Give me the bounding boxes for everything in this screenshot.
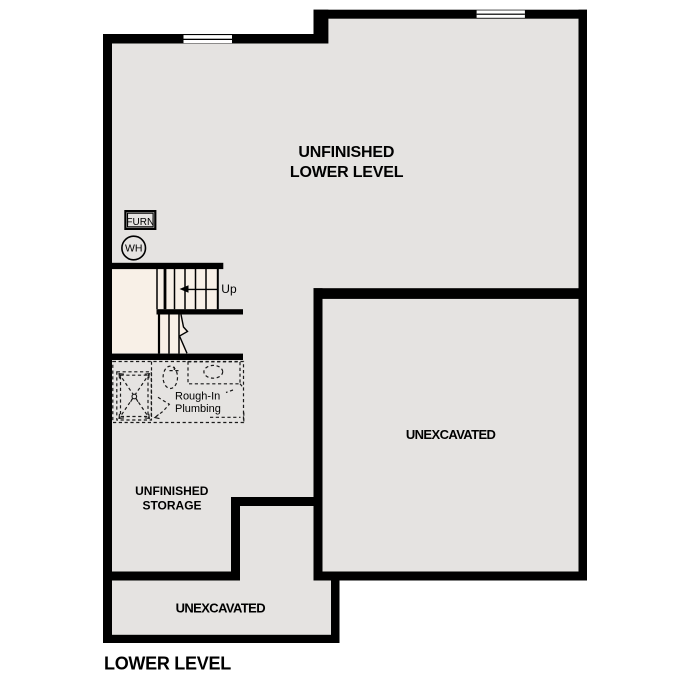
svg-text:LOWER LEVEL: LOWER LEVEL [290, 164, 404, 181]
svg-text:UNFINISHED: UNFINISHED [135, 484, 209, 498]
svg-text:LOWER LEVEL: LOWER LEVEL [104, 654, 231, 674]
svg-text:UNEXCAVATED: UNEXCAVATED [176, 601, 266, 616]
svg-text:Rough-In: Rough-In [175, 391, 220, 403]
svg-text:STORAGE: STORAGE [142, 498, 201, 512]
svg-text:Up: Up [221, 282, 237, 296]
svg-text:FURN: FURN [126, 217, 154, 228]
svg-text:UNFINISHED: UNFINISHED [298, 144, 394, 161]
svg-text:UNEXCAVATED: UNEXCAVATED [406, 427, 496, 442]
svg-text:Plumbing: Plumbing [175, 403, 221, 415]
svg-text:WH: WH [125, 243, 143, 255]
